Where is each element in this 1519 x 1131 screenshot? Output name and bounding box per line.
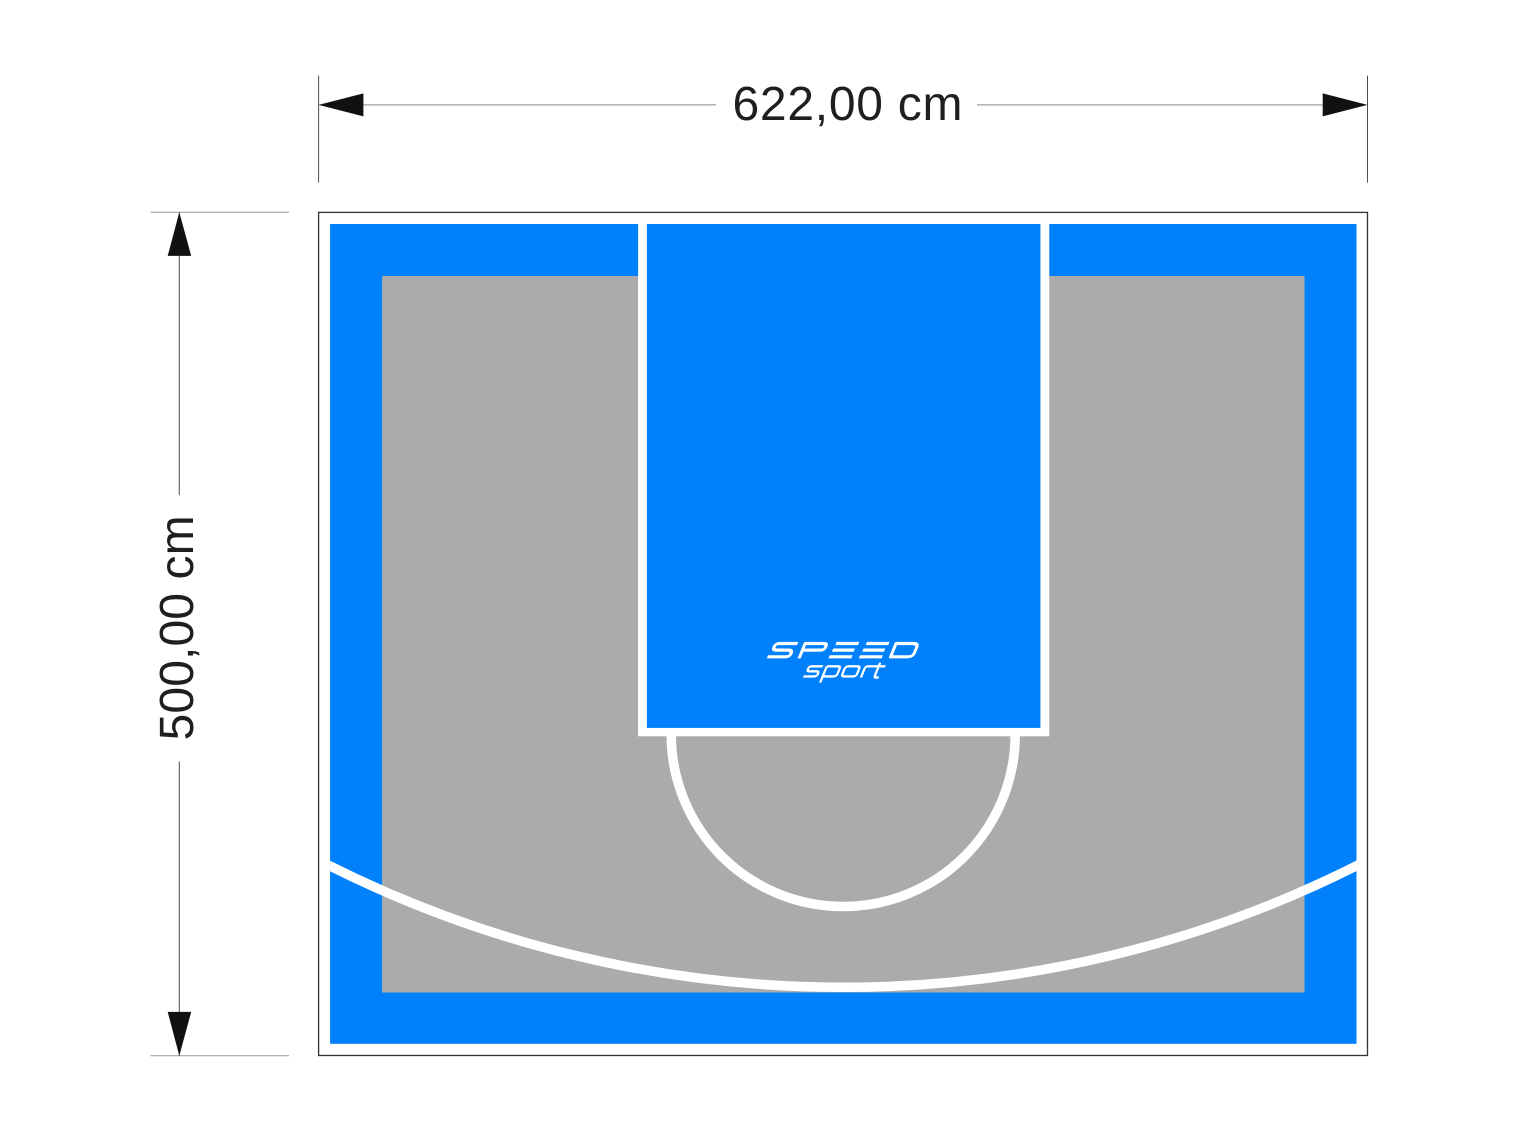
svg-text:500,00 cm: 500,00 cm bbox=[151, 515, 204, 740]
svg-text:622,00 cm: 622,00 cm bbox=[733, 78, 963, 131]
